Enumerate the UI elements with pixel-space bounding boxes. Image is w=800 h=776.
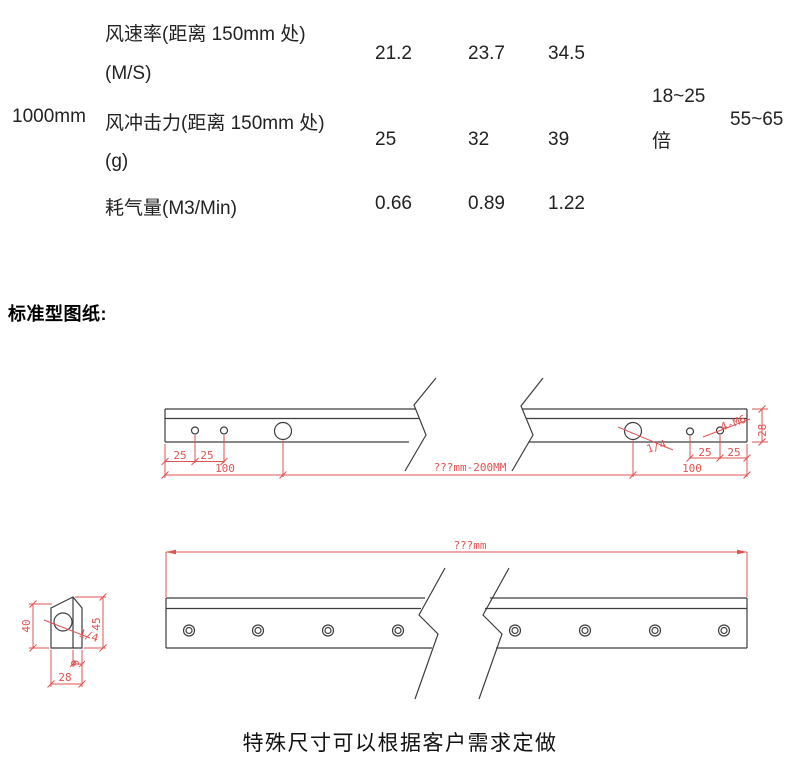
- dim-label: 40: [20, 619, 33, 632]
- profile-hole: [54, 613, 72, 631]
- dim-label: 100: [682, 462, 702, 475]
- footer-note: 特殊尺寸可以根据客户需求定做: [0, 727, 800, 757]
- dim-label-length: ???mm: [453, 539, 486, 552]
- technical-drawing: 25 25 100 ???mm-200MM 1/4 4-M6 25 25 100…: [0, 0, 800, 776]
- screw-holes: [184, 625, 730, 636]
- dim-label: 45: [90, 617, 103, 630]
- top-drawing: 25 25 100 ???mm-200MM 1/4 4-M6 25 25 100…: [162, 378, 770, 479]
- profile-view: 40 45 9 28 1/4: [20, 594, 107, 688]
- dim-label: 28: [58, 671, 71, 684]
- break-line: [479, 568, 509, 699]
- dim-arrow: [166, 550, 176, 555]
- dim-label-length: ???mm-200MM: [434, 461, 507, 474]
- bottom-drawing: ???mm 40 45 9 28 1/4: [20, 539, 747, 699]
- dim-label-height: 28: [756, 424, 769, 437]
- dim-label: 100: [215, 462, 235, 475]
- dim-label: 9: [69, 660, 82, 667]
- break-line: [512, 378, 543, 471]
- dim-label: 25: [727, 446, 740, 459]
- dim-label-thread: 4-M6: [719, 413, 748, 434]
- dim-label: 25: [698, 446, 711, 459]
- mounting-holes: [192, 423, 724, 440]
- dim-arrow: [737, 550, 747, 555]
- break-line: [405, 378, 436, 471]
- dim-label: 25: [173, 449, 186, 462]
- dim-label: 25: [200, 449, 213, 462]
- break-line: [415, 568, 445, 699]
